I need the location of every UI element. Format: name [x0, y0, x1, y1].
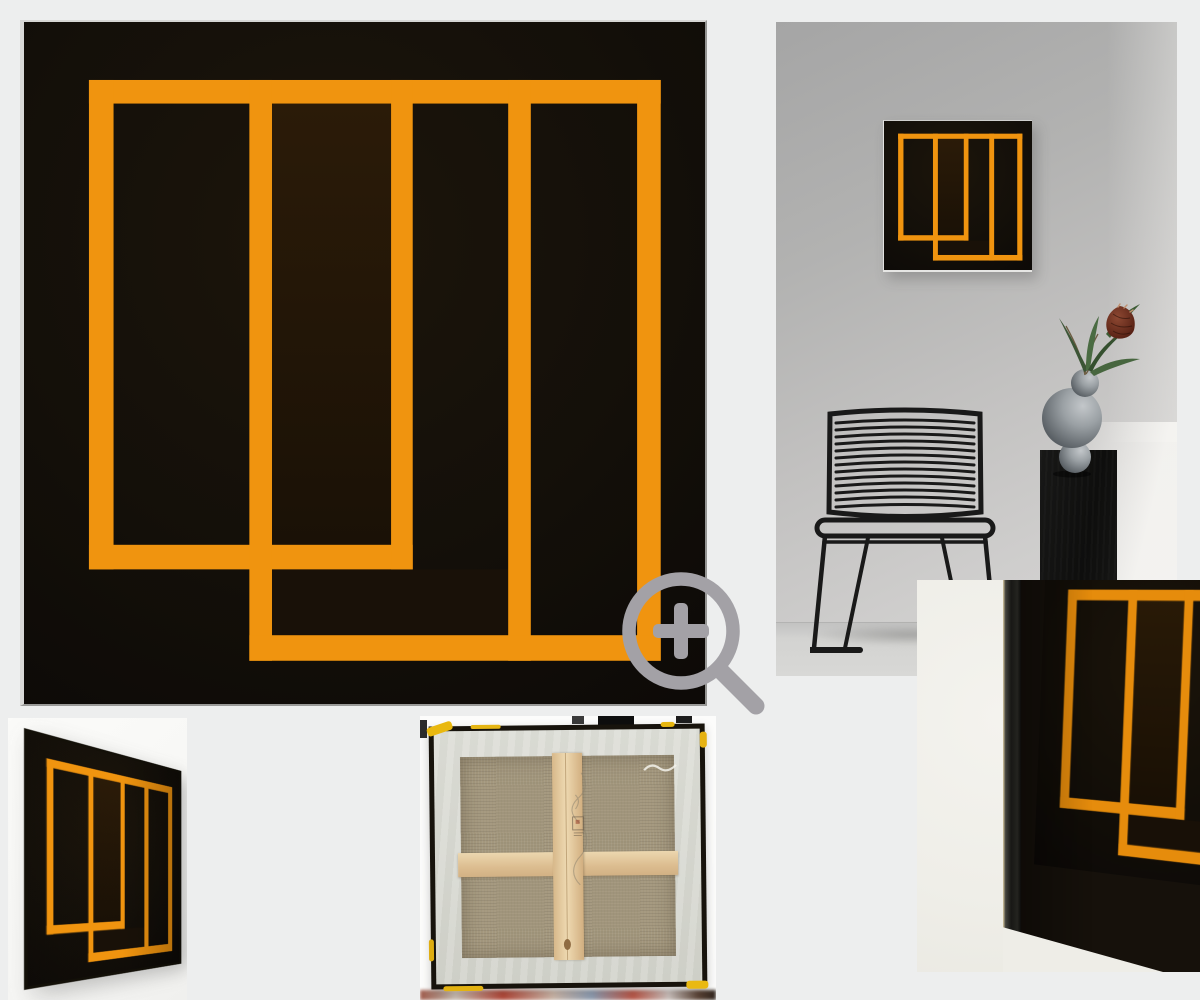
paint-drip [429, 939, 434, 961]
paint-drip [700, 732, 707, 748]
perspective-wrap [24, 728, 187, 990]
canvas-side-edge [1003, 580, 1021, 972]
canvas-back [429, 724, 708, 990]
pencil-signature [539, 764, 620, 895]
artwork-face [24, 728, 181, 990]
interior-context-image[interactable]: Painting hanging on a grey wall above a … [776, 22, 1177, 676]
closeup-detail-image[interactable]: Close-up angled detail of the canvas edg… [917, 580, 1200, 972]
canvas-3d-box [24, 728, 181, 990]
main-artwork-image[interactable]: Front view of the painting [20, 20, 707, 706]
chalk-mark [641, 760, 681, 776]
artwork-graphic [28, 732, 180, 986]
colorful-floor-strip [420, 990, 716, 1000]
paint-drip [686, 981, 708, 989]
paint-drip [661, 722, 675, 727]
background-prop [572, 716, 584, 724]
shading-overlay [1021, 580, 1200, 972]
wood-knot [564, 939, 571, 950]
artwork-face [1021, 580, 1200, 972]
protea-flower [1046, 292, 1166, 412]
artwork-graphic [24, 22, 705, 704]
zoom-button[interactable] [617, 567, 767, 717]
hung-painting [883, 120, 1032, 272]
paint-drip [471, 725, 501, 729]
canvas-back-image[interactable]: Back of the canvas showing wooden stretc… [420, 716, 716, 1000]
paint-drip [443, 986, 483, 991]
artwork-graphic [884, 121, 1032, 270]
background-prop [676, 716, 692, 723]
angled-view-image[interactable]: Angled side view of the stretched canvas [8, 718, 187, 1000]
magnifier-plus-icon [617, 567, 767, 717]
